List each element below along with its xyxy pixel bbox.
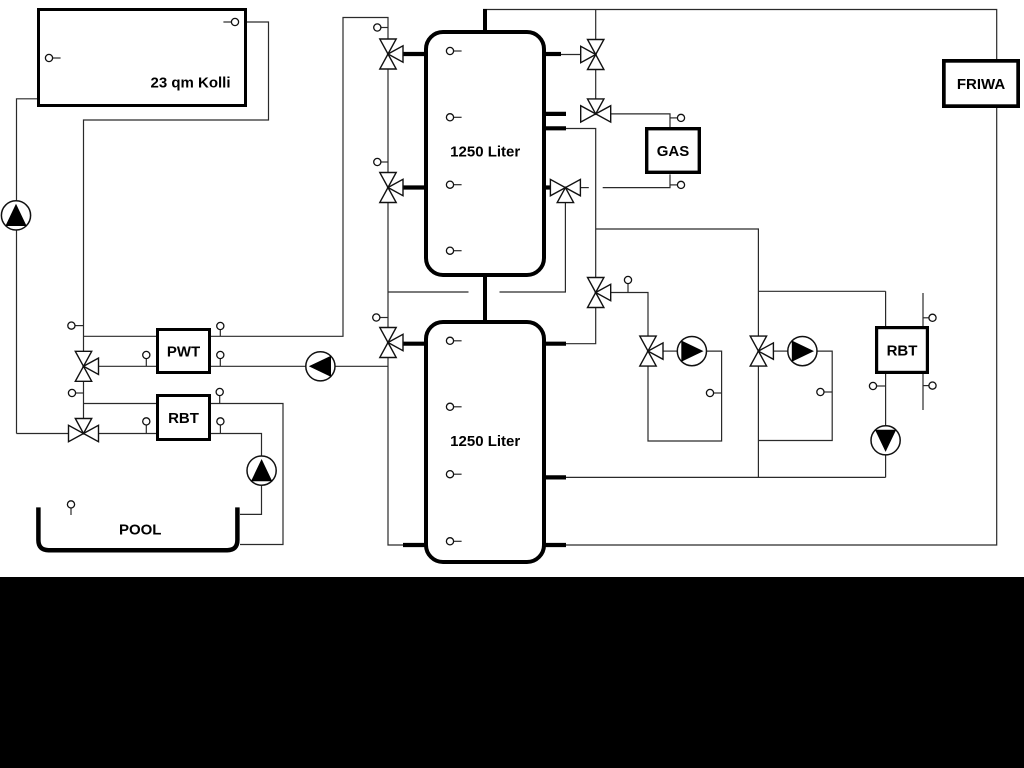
svg-text:PWT: PWT	[167, 343, 200, 360]
svg-text:RBT: RBT	[887, 342, 918, 359]
svg-text:FRIWA: FRIWA	[957, 76, 1005, 93]
svg-text:POOL: POOL	[119, 522, 162, 539]
svg-text:GAS: GAS	[657, 143, 690, 160]
svg-text:RBT: RBT	[168, 410, 199, 427]
svg-text:23 qm Kolli: 23 qm Kolli	[150, 75, 230, 92]
svg-text:1250 Liter: 1250 Liter	[450, 144, 520, 161]
svg-text:1250 Liter: 1250 Liter	[450, 433, 520, 450]
